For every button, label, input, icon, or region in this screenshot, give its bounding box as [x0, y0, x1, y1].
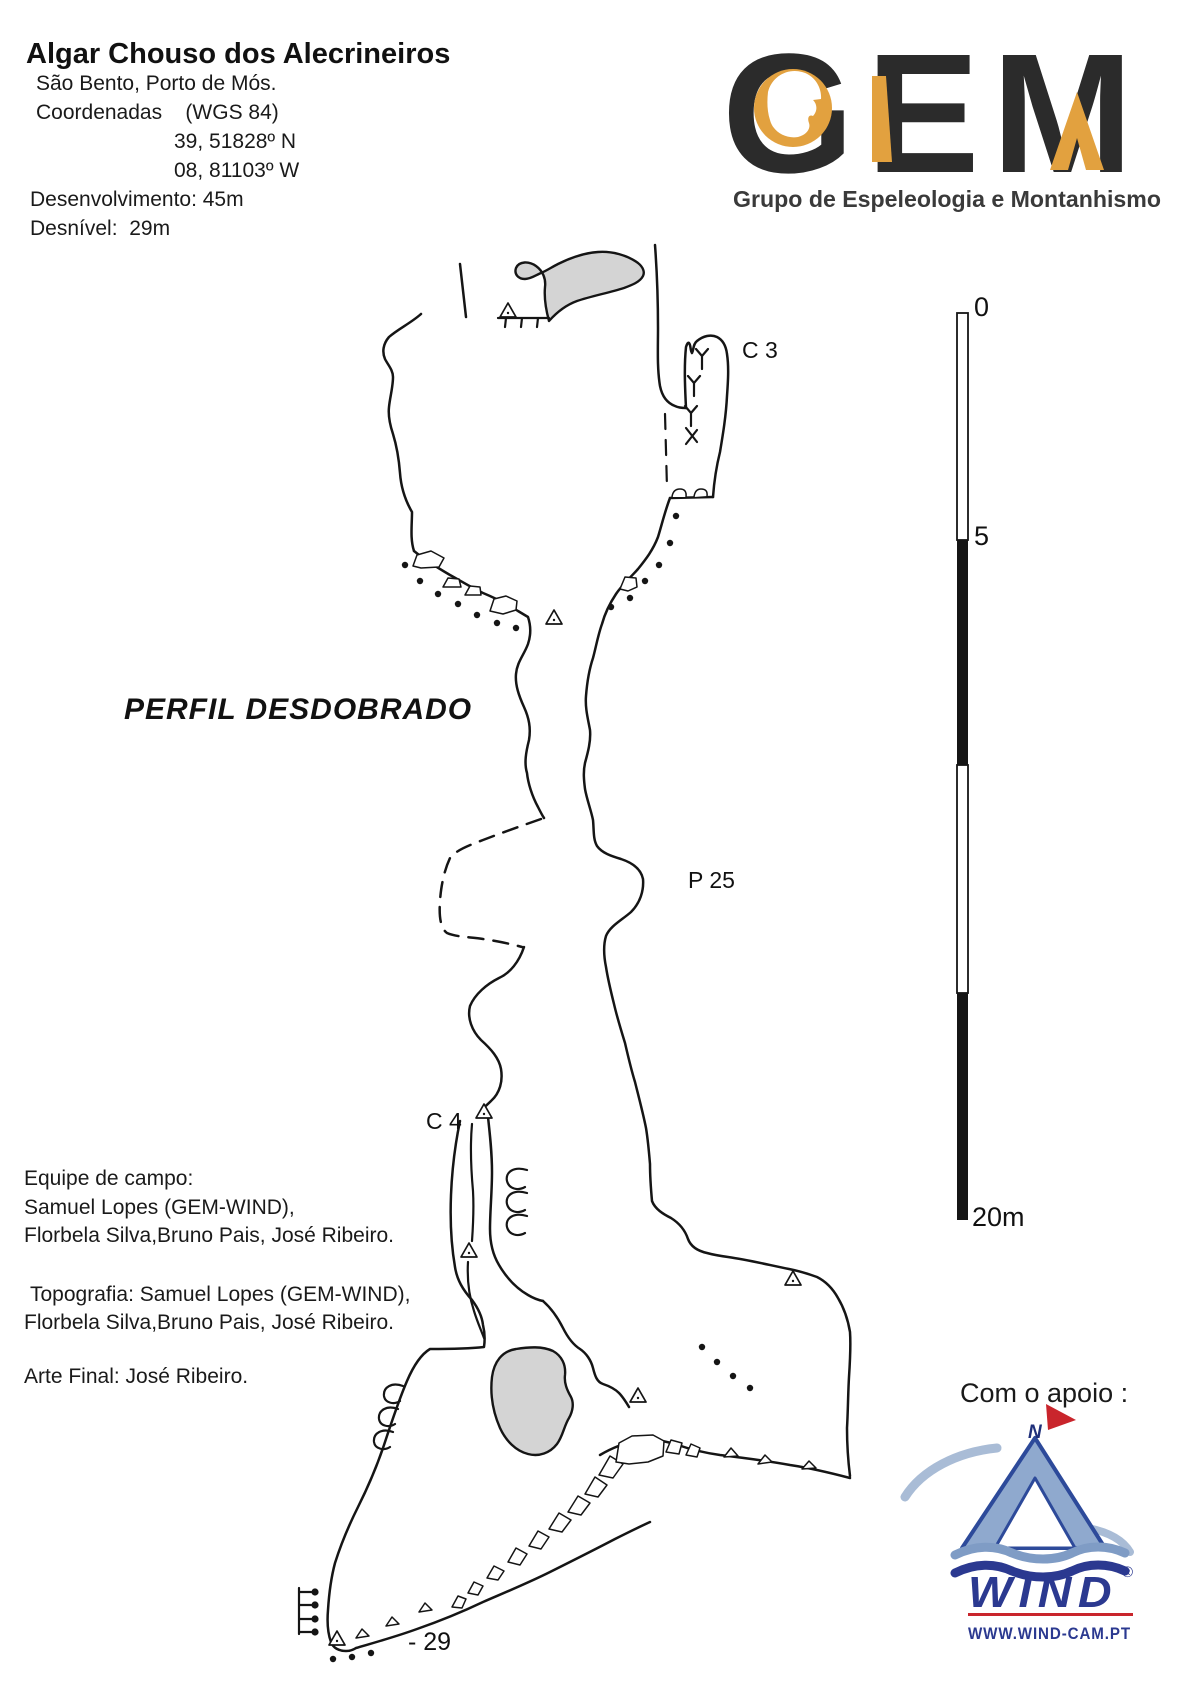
- view-label: PERFIL DESDOBRADO: [124, 693, 472, 726]
- rock-debris: [356, 489, 816, 1638]
- ladder-dots: [311, 1588, 318, 1635]
- wind-red-rule: [968, 1613, 1133, 1616]
- wind-registered-icon: ®: [1122, 1564, 1133, 1581]
- scale-bar: 0 5 20m: [957, 292, 1025, 1232]
- label-p25: P 25: [688, 867, 735, 893]
- art-line: Arte Final: José Ribeiro.: [24, 1363, 410, 1392]
- scale-0: 0: [974, 292, 989, 322]
- scale-20m: 20m: [972, 1202, 1025, 1232]
- survey-stations: [329, 303, 801, 1645]
- topo-line2: Florbela Silva,Bruno Pais, José Ribeiro.: [24, 1309, 410, 1338]
- label-c4: C 4: [426, 1108, 462, 1134]
- team-line2: Florbela Silva,Bruno Pais, José Ribeiro.: [24, 1222, 410, 1251]
- wind-brand: WIND: [968, 1568, 1118, 1617]
- team-line1: Samuel Lopes (GEM-WIND),: [24, 1194, 410, 1223]
- wind-compass-n: N: [1028, 1422, 1043, 1443]
- wind-url: WWW.WIND-CAM.PT: [968, 1624, 1131, 1643]
- topo-line1: Topografia: Samuel Lopes (GEM-WIND),: [30, 1281, 410, 1310]
- floor-dots: [330, 513, 753, 1662]
- wind-logo: N WIND ® WWW.WIND-CAM.PT: [880, 1395, 1190, 1683]
- team-title: Equipe de campo:: [24, 1165, 410, 1194]
- boulder-shapes: [491, 252, 643, 1455]
- label-bottom-depth: - 29: [408, 1628, 451, 1656]
- credits-block: Equipe de campo: Samuel Lopes (GEM-WIND)…: [24, 1165, 410, 1391]
- cave-outline: [328, 245, 851, 1651]
- label-c3: C 3: [742, 337, 778, 363]
- wind-mountain-icon: N: [905, 1404, 1130, 1577]
- scale-5: 5: [974, 521, 989, 551]
